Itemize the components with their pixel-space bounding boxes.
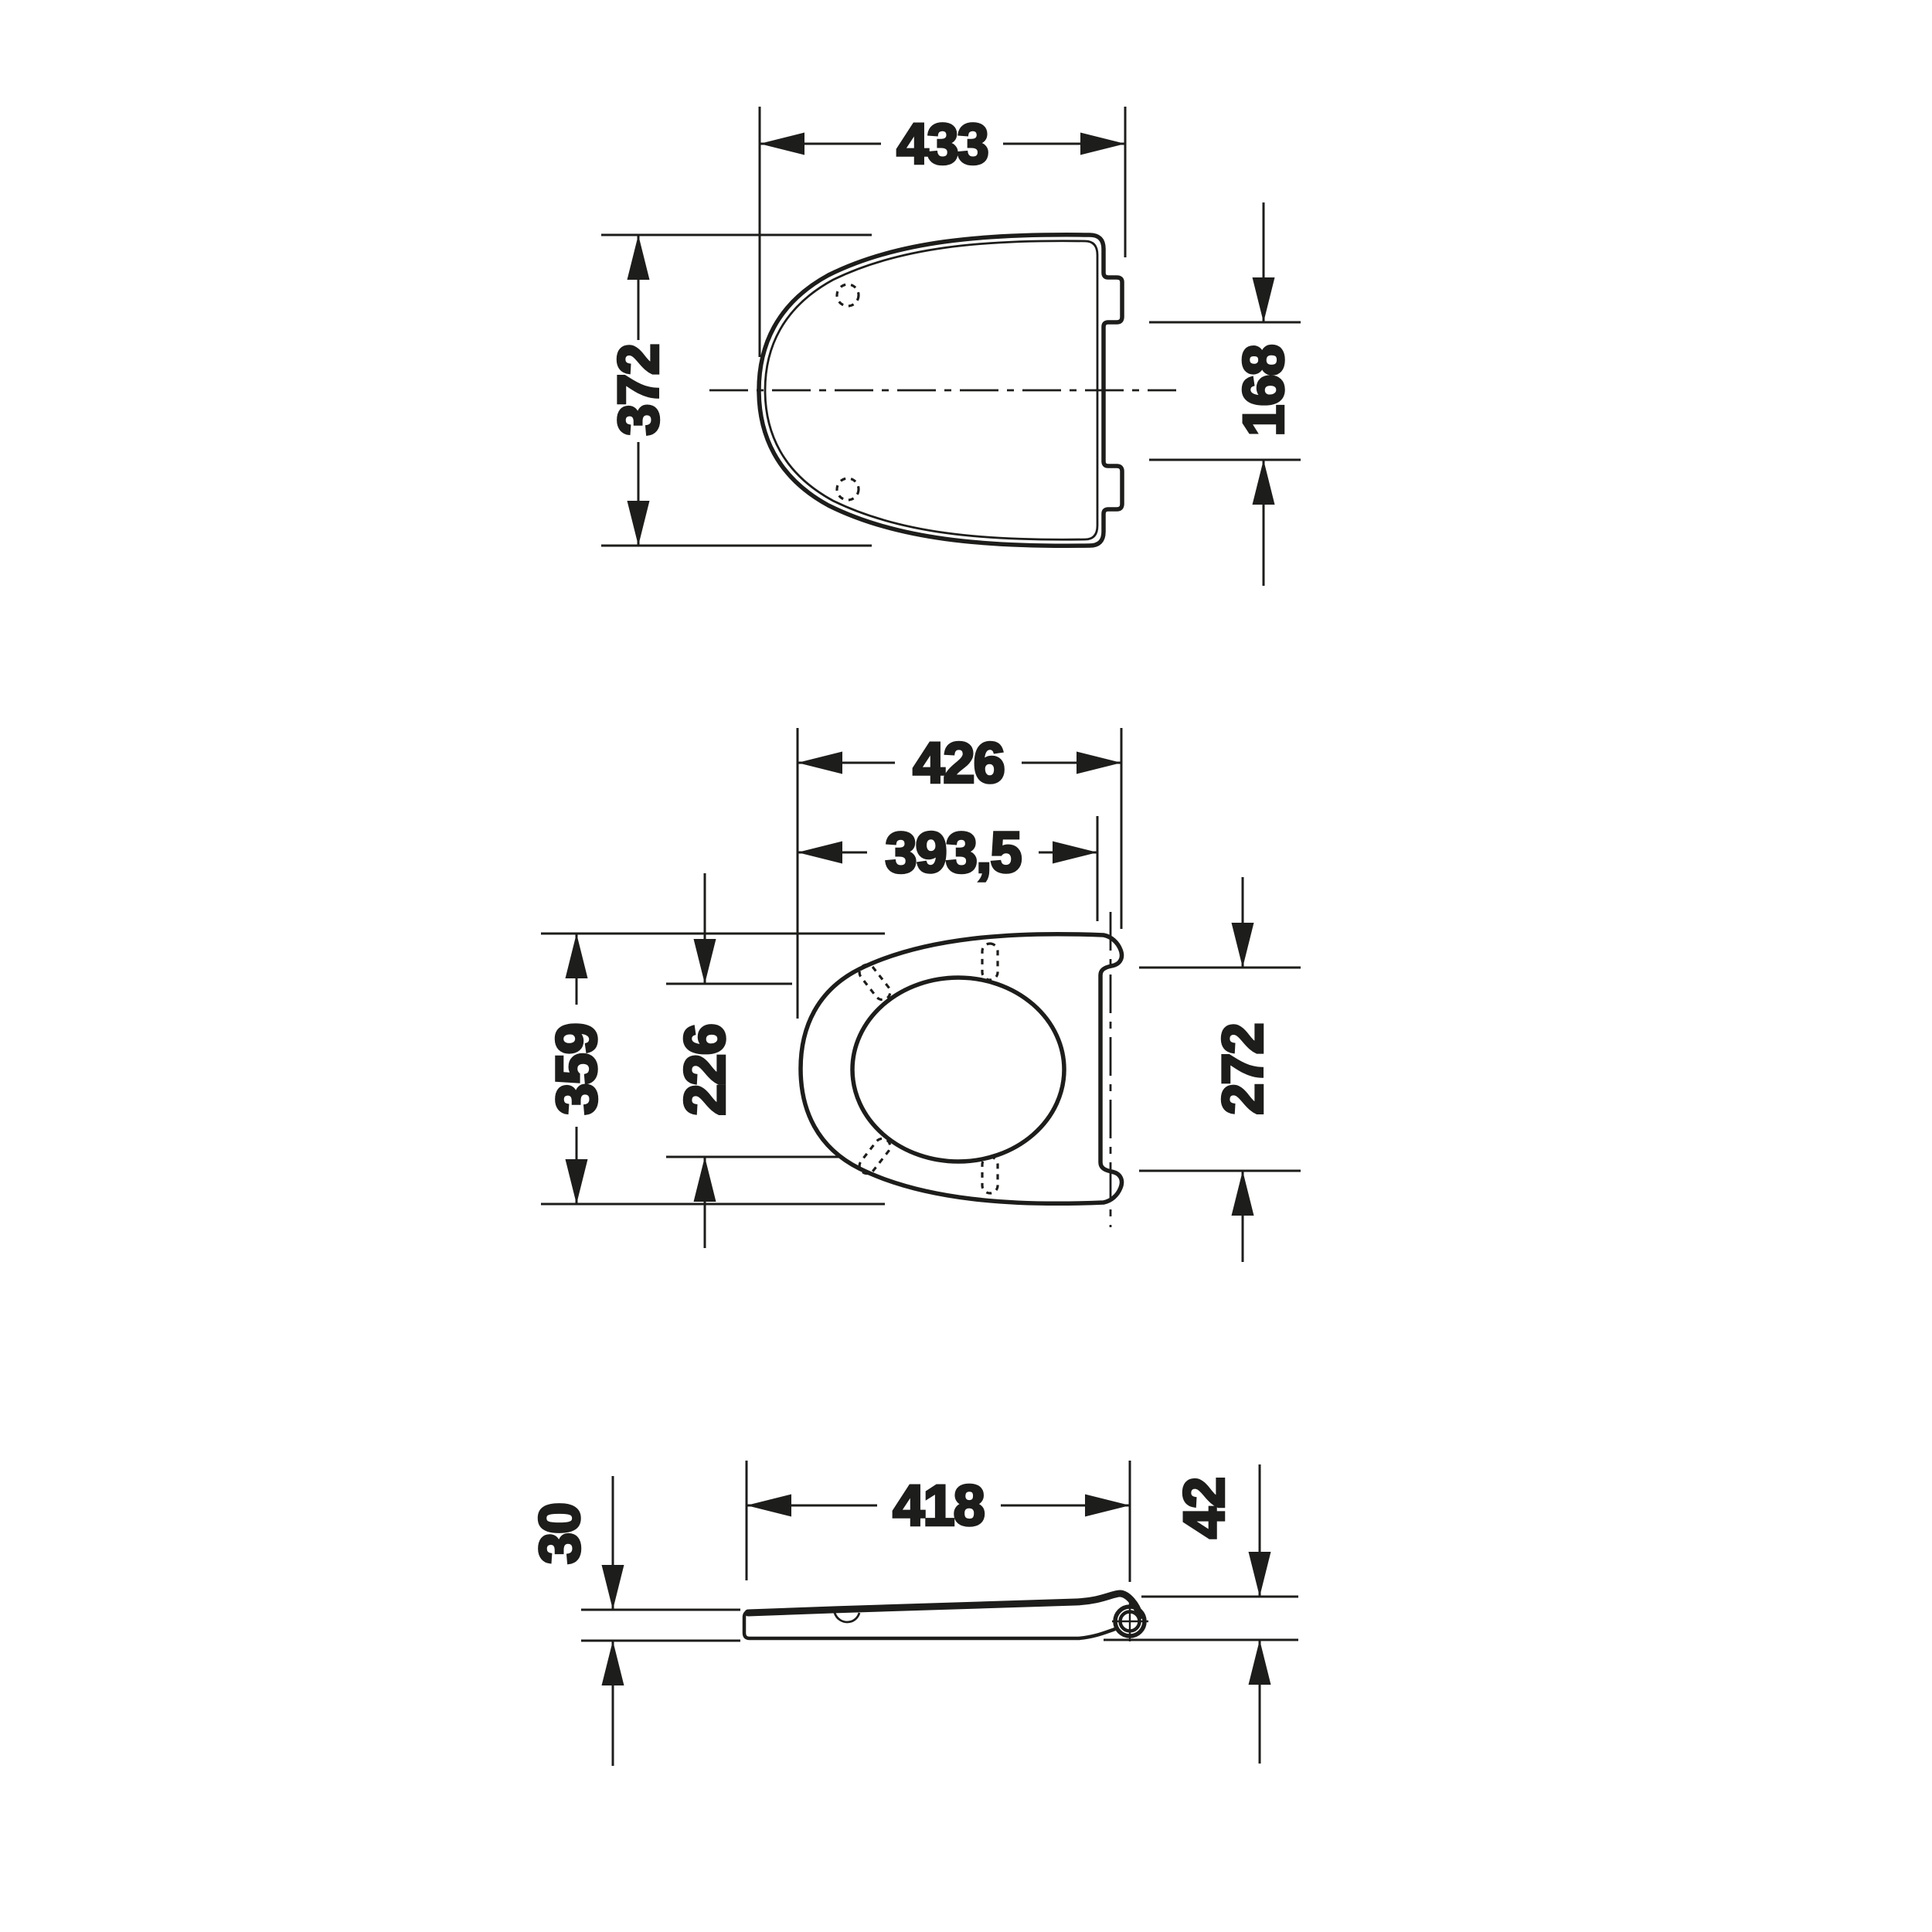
dim-profile-hinge-height: 42 — [1104, 1464, 1298, 1764]
dim-label-30: 30 — [528, 1504, 592, 1564]
ring-bumper-slot-bottom — [982, 1157, 998, 1193]
dim-label-433: 433 — [896, 112, 987, 176]
dim-label-42: 42 — [1172, 1478, 1236, 1539]
dim-label-426: 426 — [913, 731, 1003, 795]
dim-lid-width: 433 — [760, 107, 1125, 357]
dim-ring-hinge-depth: 272 — [1139, 877, 1301, 1262]
profile-bumper-dimple — [835, 1613, 859, 1622]
dim-ring-bumper-spacing: 226 — [666, 873, 838, 1248]
lid-bumper-hole-top — [837, 284, 859, 306]
profile-top-surface — [748, 1594, 1140, 1616]
dim-lid-hinge-span: 168 — [1149, 202, 1301, 586]
lid-bumper-hole-bottom — [837, 478, 859, 500]
dim-label-168: 168 — [1232, 345, 1296, 436]
dim-profile-length: 418 — [747, 1461, 1130, 1582]
dim-profile-front-thickness: 30 — [528, 1476, 741, 1766]
profile-underside — [744, 1611, 1115, 1638]
lid-outline — [759, 235, 1122, 546]
ring-bumper-slot-top — [982, 944, 998, 980]
dim-ring-width-to-hinge: 393,5 — [798, 816, 1097, 921]
dim-label-418: 418 — [893, 1474, 983, 1538]
seat-ring-top-view: 426 393,5 359 2 — [541, 728, 1301, 1262]
seat-profile-side-view: 418 30 42 — [528, 1461, 1299, 1766]
technical-drawing-canvas: 433 372 168 — [0, 0, 1932, 1932]
dim-label-372: 372 — [607, 345, 671, 435]
ring-opening — [852, 978, 1064, 1162]
dim-label-272: 272 — [1211, 1024, 1275, 1114]
lid-top-view: 433 372 168 — [601, 107, 1301, 586]
dim-label-226: 226 — [673, 1025, 737, 1115]
dim-label-393-5: 393,5 — [885, 821, 1021, 885]
dim-label-359: 359 — [545, 1024, 609, 1114]
